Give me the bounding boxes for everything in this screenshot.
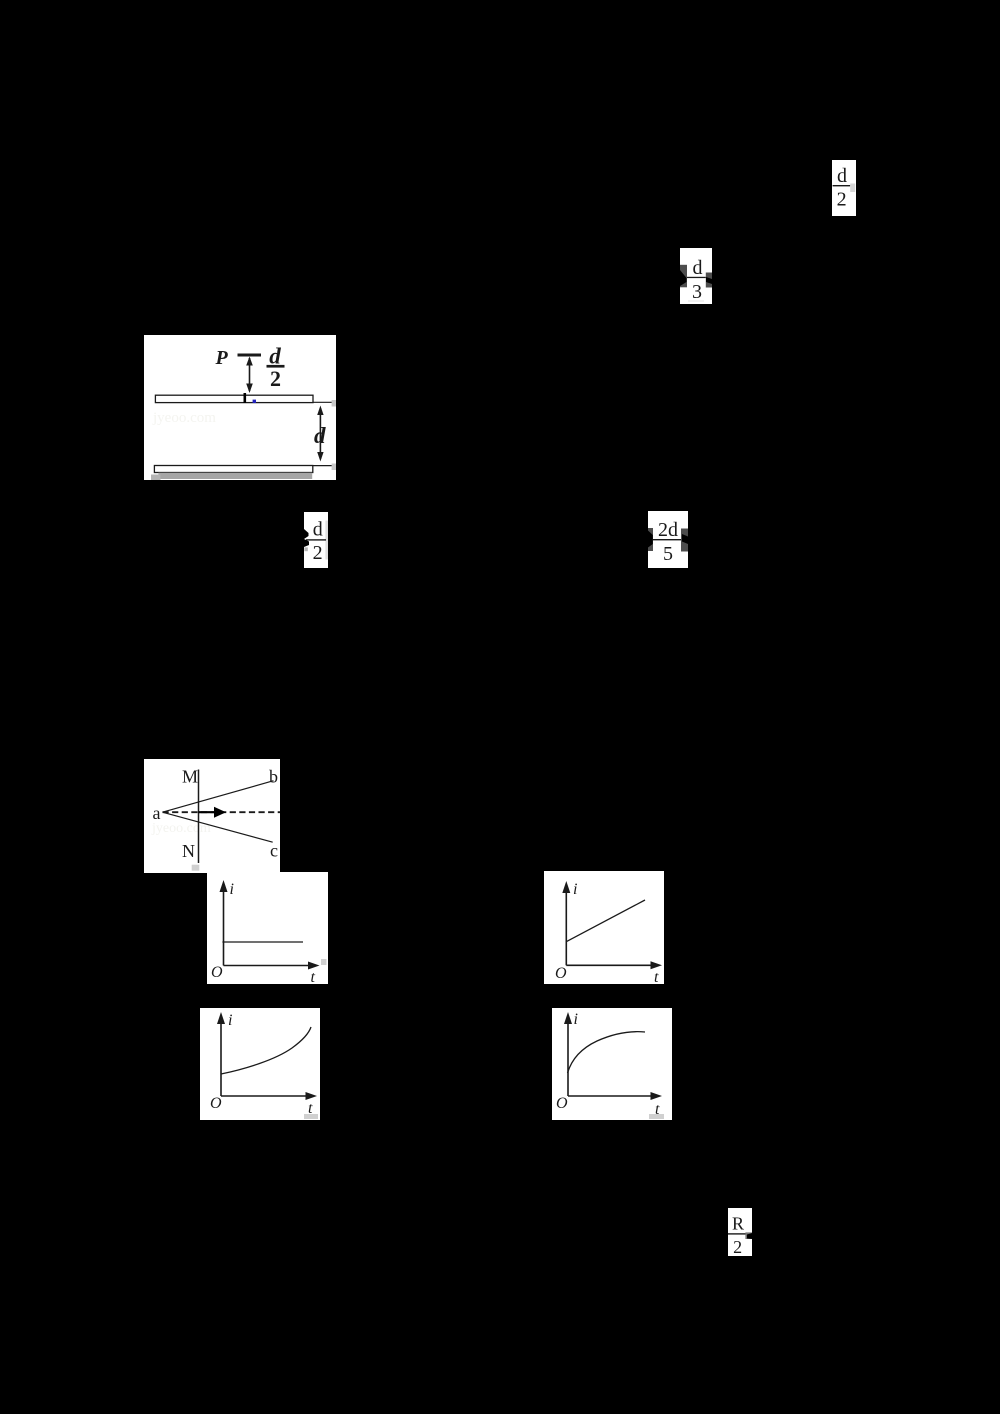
svg-text:R: R	[732, 1214, 744, 1234]
svg-text:3: 3	[692, 281, 702, 303]
svg-text:N: N	[182, 841, 195, 861]
svg-text:2: 2	[313, 542, 323, 564]
svg-text:i: i	[574, 1011, 578, 1028]
svg-text:d: d	[313, 519, 323, 541]
svg-text:O: O	[211, 964, 223, 981]
svg-text:a: a	[153, 803, 161, 823]
svg-text:c: c	[270, 841, 278, 861]
svg-text:5: 5	[663, 543, 673, 565]
svg-text:t: t	[654, 969, 659, 984]
svg-text:2: 2	[733, 1237, 742, 1256]
svg-text:P: P	[215, 347, 229, 369]
svg-text:i: i	[228, 1012, 232, 1029]
svg-text:O: O	[210, 1095, 222, 1112]
svg-text:t: t	[311, 969, 316, 984]
svg-text:d: d	[269, 344, 281, 369]
svg-text:i: i	[230, 881, 234, 898]
svg-text:d: d	[693, 257, 703, 279]
svg-text:O: O	[555, 965, 567, 982]
svg-text:O: O	[556, 1095, 568, 1112]
svg-text:M: M	[182, 767, 198, 787]
svg-text:i: i	[573, 881, 577, 898]
svg-text:2: 2	[837, 189, 847, 211]
svg-text:2: 2	[270, 366, 281, 391]
svg-text:2d: 2d	[658, 519, 678, 541]
svg-text:jyeoo.com: jyeoo.com	[152, 410, 216, 426]
svg-text:d: d	[837, 165, 847, 187]
svg-text:b: b	[269, 767, 278, 787]
